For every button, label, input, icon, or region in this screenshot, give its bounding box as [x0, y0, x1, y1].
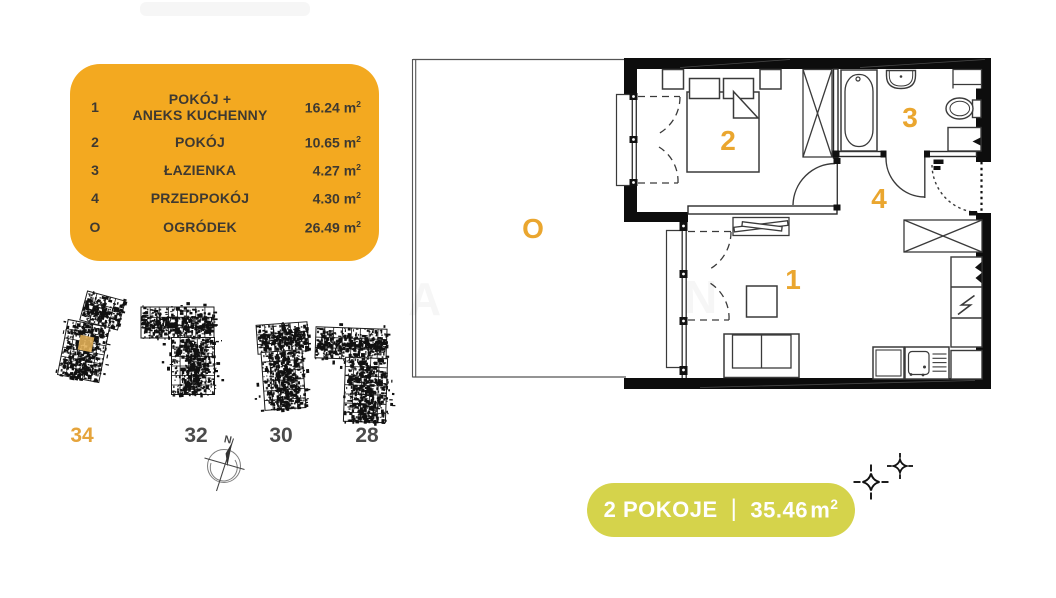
- svg-text:3: 3: [902, 102, 918, 133]
- svg-text:1: 1: [785, 264, 801, 295]
- svg-text:O: O: [522, 213, 544, 244]
- svg-text:2: 2: [720, 125, 736, 156]
- svg-text:4: 4: [871, 183, 887, 214]
- svg-text:N: N: [684, 271, 717, 323]
